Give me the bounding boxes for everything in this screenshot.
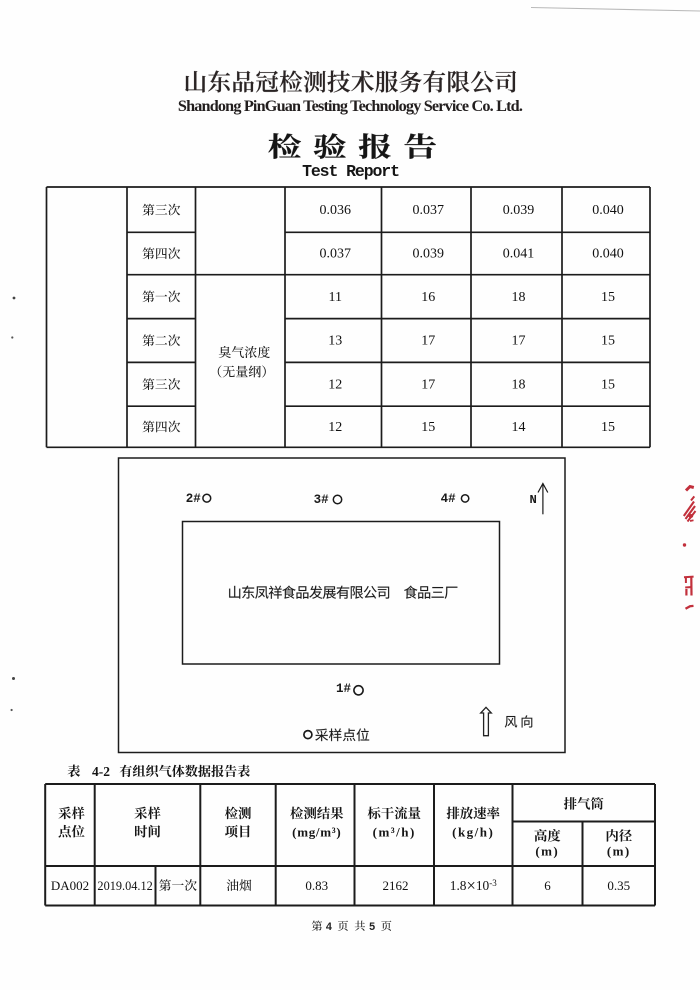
svg-text:1#: 1# [336, 682, 352, 696]
svg-text:15: 15 [601, 290, 615, 305]
svg-text:0.040: 0.040 [592, 247, 624, 262]
svg-text:0.040: 0.040 [592, 203, 624, 218]
svg-text:0.036: 0.036 [320, 203, 352, 218]
svg-text:(mg/m³): (mg/m³) [292, 824, 341, 839]
svg-text:0.041: 0.041 [503, 247, 535, 262]
svg-text:18: 18 [512, 378, 526, 393]
svg-text:17: 17 [421, 334, 435, 349]
svg-text:0.037: 0.037 [320, 247, 352, 262]
svg-text:(m): (m) [607, 844, 631, 859]
svg-text:4-2: 4-2 [92, 764, 110, 779]
svg-text:18: 18 [512, 290, 526, 305]
svg-text:4: 4 [326, 921, 332, 933]
svg-text:15: 15 [601, 334, 615, 349]
svg-text:15: 15 [421, 420, 435, 435]
svg-text:(kg/h): (kg/h) [452, 824, 494, 839]
svg-text:2019.04.12: 2019.04.12 [97, 879, 152, 893]
svg-text:Shandong PinGuan Testing Techn: Shandong PinGuan Testing Technology Serv… [178, 97, 523, 115]
svg-text:(m³/h): (m³/h) [373, 824, 416, 839]
svg-text:0.039: 0.039 [413, 247, 445, 262]
svg-text:3#: 3# [314, 493, 330, 507]
svg-text:2162: 2162 [383, 878, 409, 893]
svg-text:DA002: DA002 [51, 878, 89, 893]
svg-text:2#: 2# [186, 492, 202, 506]
svg-text:14: 14 [512, 420, 526, 435]
svg-text:15: 15 [601, 420, 615, 435]
svg-text:12: 12 [328, 378, 342, 393]
svg-text:0.35: 0.35 [607, 878, 630, 893]
svg-text:6: 6 [544, 878, 551, 893]
svg-text:13: 13 [328, 334, 342, 349]
svg-text:0.037: 0.037 [413, 203, 445, 218]
svg-text:Test Report: Test Report [302, 162, 399, 181]
svg-text:4#: 4# [441, 492, 457, 506]
svg-text:17: 17 [421, 378, 435, 393]
svg-text:0.039: 0.039 [503, 203, 535, 218]
svg-text:(m): (m) [535, 844, 559, 859]
svg-text:0.83: 0.83 [305, 878, 328, 893]
svg-text:N: N [530, 493, 537, 507]
svg-text:5: 5 [369, 921, 375, 933]
svg-text:17: 17 [512, 334, 526, 349]
svg-text:12: 12 [328, 420, 342, 435]
svg-text:11: 11 [329, 290, 342, 305]
svg-text:16: 16 [421, 290, 435, 305]
svg-text:15: 15 [601, 378, 615, 393]
